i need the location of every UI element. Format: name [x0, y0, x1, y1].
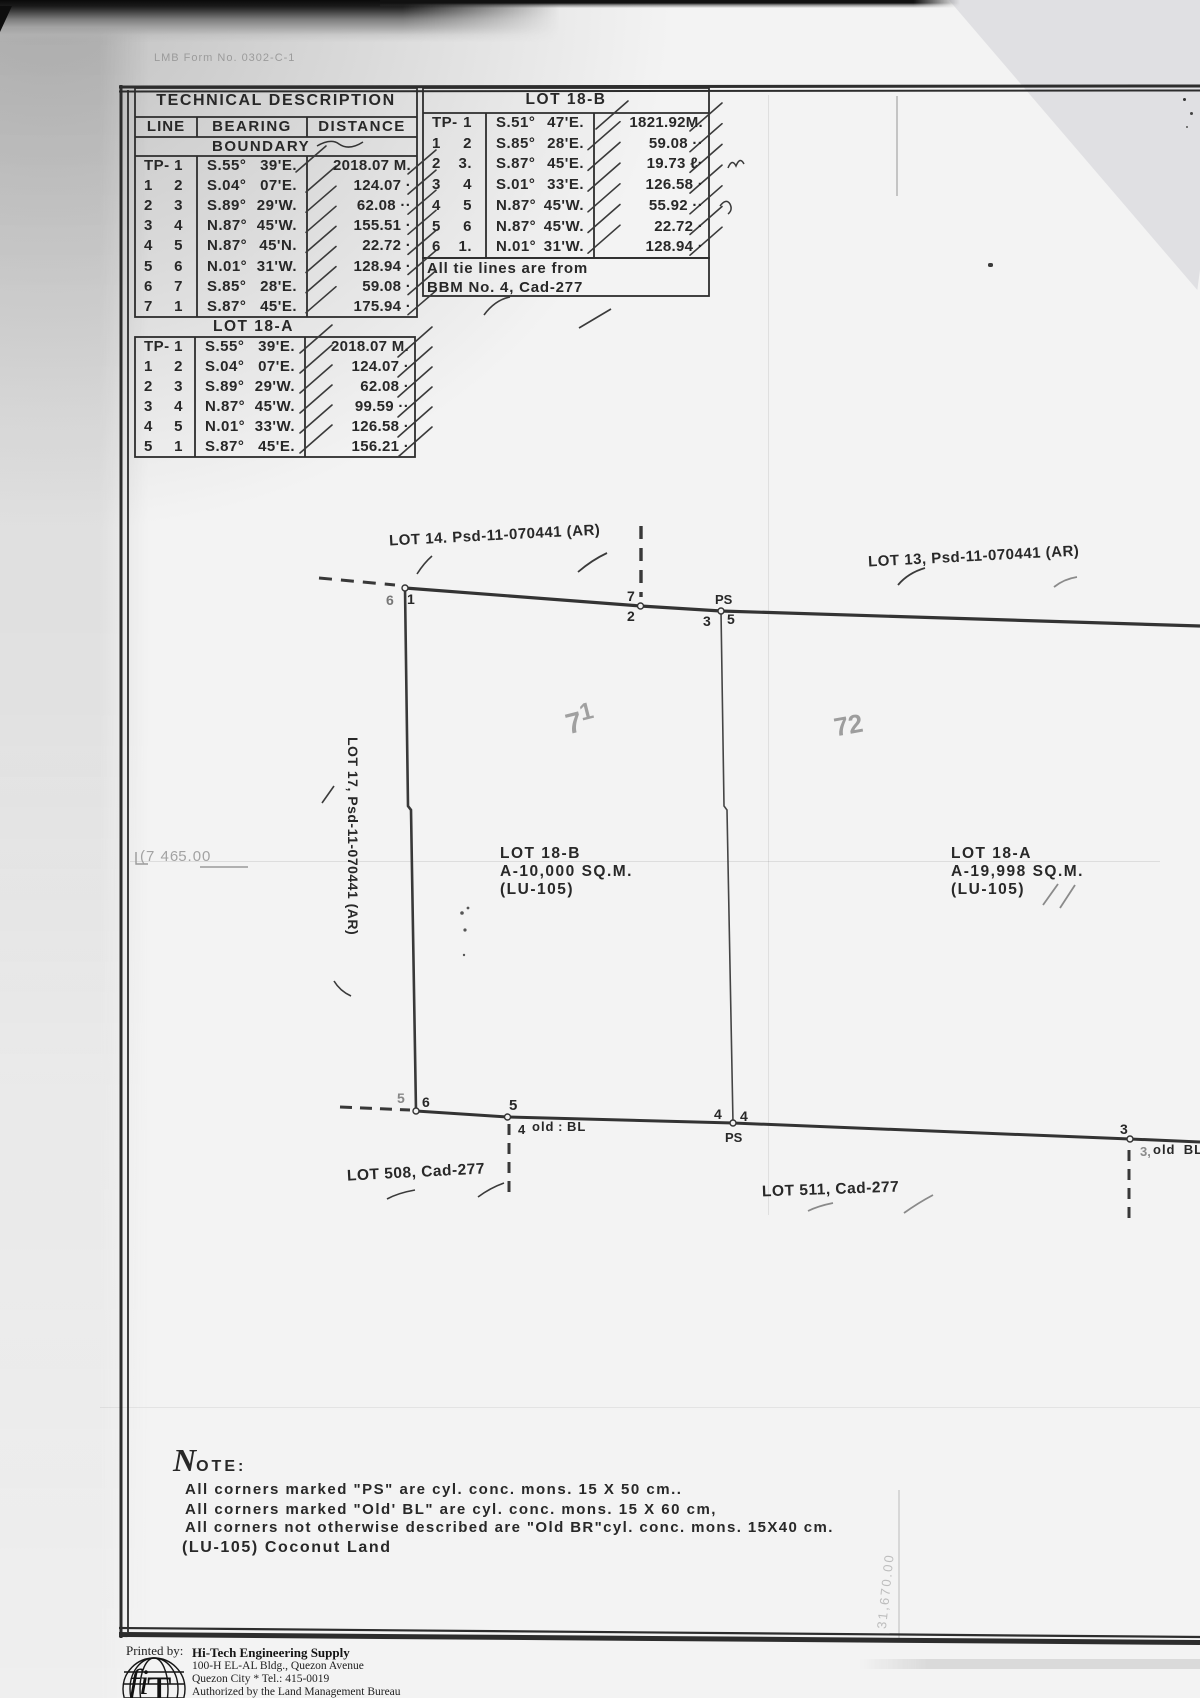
svg-text:fi: fi [129, 1662, 149, 1698]
svg-text:T: T [147, 1668, 171, 1698]
